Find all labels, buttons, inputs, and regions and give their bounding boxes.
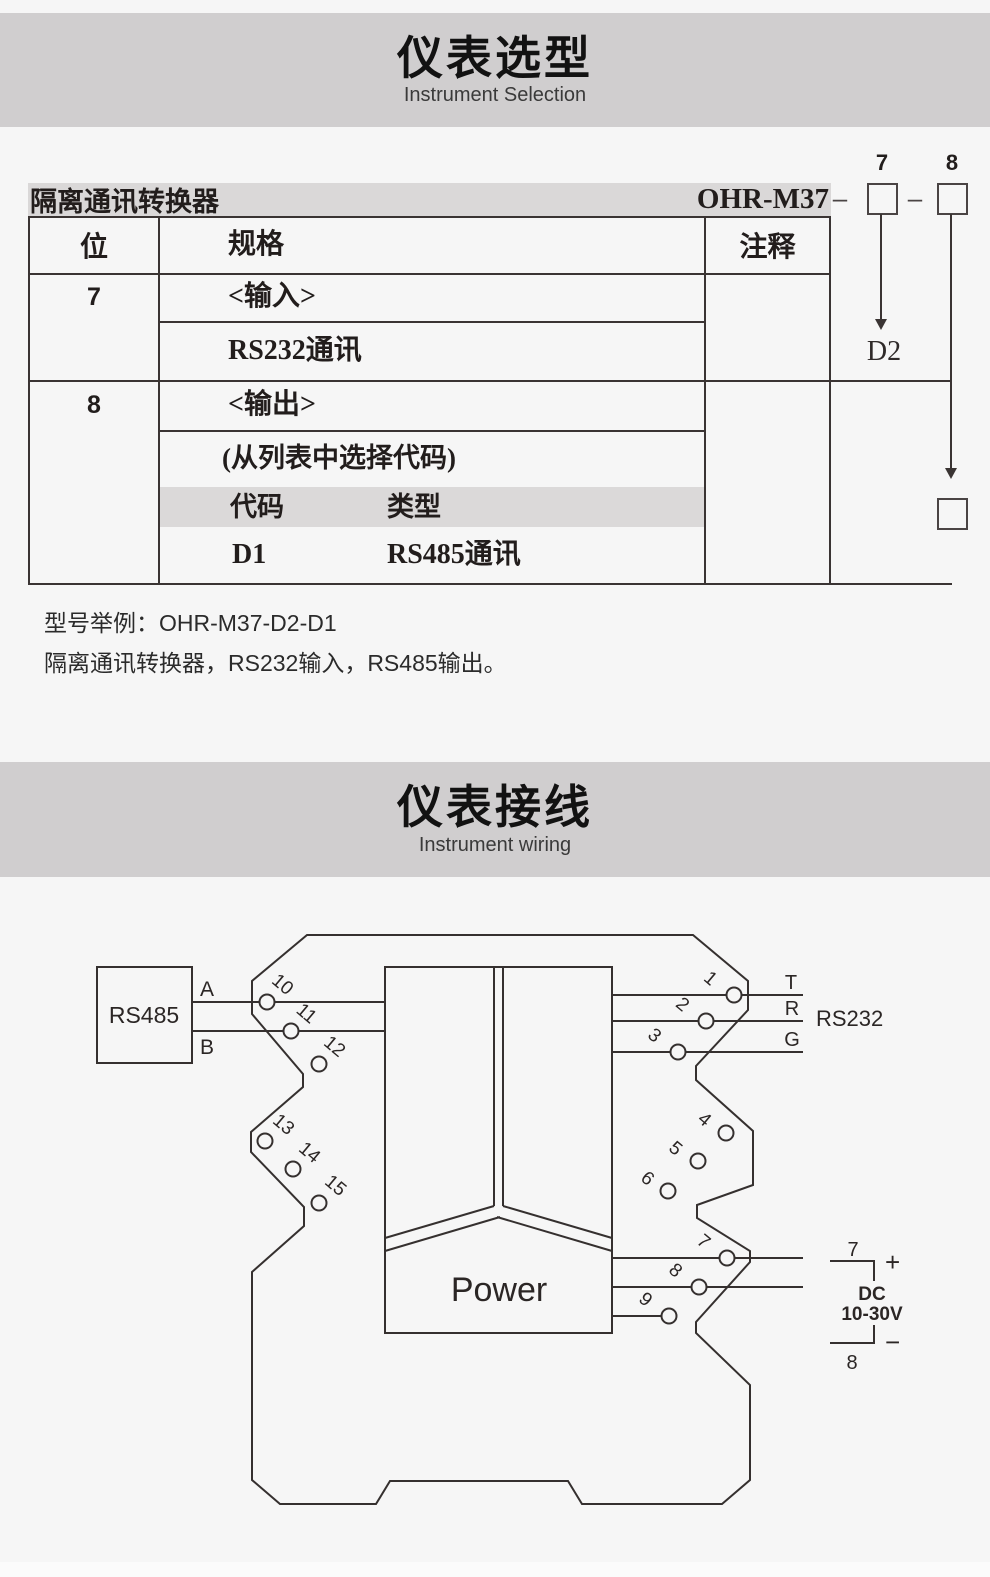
rs485-label: RS485 (109, 1002, 179, 1028)
product-name: 隔离通讯转换器 (30, 180, 219, 219)
terminal-circle-1 (727, 988, 742, 1003)
entry-code-d1: D1 (232, 527, 266, 583)
terminal-circle-10 (260, 995, 275, 1010)
wire-g-label: G (784, 1029, 800, 1051)
terminal-number-8: 8 (664, 1259, 686, 1282)
row7-spec-value: RS232通讯 (228, 321, 362, 380)
arrow-7-line (880, 214, 882, 320)
isolation-barrier-diagonal (385, 1206, 612, 1251)
arrow-8-head (945, 468, 957, 479)
section-title-en: Instrument Selection (404, 84, 586, 107)
wire-b-label: B (200, 1036, 214, 1059)
terminal-number-11: 11 (292, 999, 321, 1028)
arrow-8-line (950, 214, 952, 469)
rs232-label: RS232 (816, 1006, 883, 1031)
subheader-code: 代码 (230, 487, 284, 527)
terminal-circle-7 (720, 1251, 735, 1266)
terminal-circle-9 (662, 1309, 677, 1324)
power-label: Power (451, 1271, 547, 1309)
subheader-type: 类型 (387, 487, 441, 527)
terminal-number-9: 9 (634, 1288, 656, 1311)
terminal-number-5: 5 (664, 1137, 686, 1160)
row7-spec-title: <输入> (228, 273, 316, 321)
terminal-circle-11 (284, 1024, 299, 1039)
terminal-circle-15 (312, 1196, 327, 1211)
dc-range-label: 10-30V (841, 1304, 903, 1325)
example-model: 型号举例：OHR-M37-D2-D1 (44, 604, 337, 638)
digit-8-label: 8 (937, 148, 967, 178)
wiring-diagram: 123456789101112131415 RS485 A B T R G RS… (0, 877, 990, 1577)
terminal-circle-4 (719, 1126, 734, 1141)
terminal-circle-12 (312, 1057, 327, 1072)
col-header-position: 位 (28, 216, 160, 273)
table-line-row8 (28, 380, 952, 382)
dc-terminal-7-label: 7 (847, 1239, 858, 1261)
bottom-strip (0, 1562, 990, 1577)
row8-spec-hint: (从列表中选择代码) (222, 430, 456, 487)
digit-7-label: 7 (867, 148, 897, 178)
code-box-8 (937, 183, 968, 215)
code-box-7 (867, 183, 898, 215)
table-line-bottom (28, 583, 952, 585)
wiring-title-en: Instrument wiring (419, 834, 571, 857)
isolation-barrier-vertical (494, 967, 503, 1206)
wire-t-label: T (785, 972, 797, 994)
col-header-note: 注释 (704, 216, 831, 273)
terminal-circle-5 (691, 1154, 706, 1169)
terminal-circle-8 (692, 1280, 707, 1295)
terminal-number-6: 6 (636, 1167, 658, 1190)
table-title-bar: 隔离通讯转换器 OHR-M37 (28, 183, 831, 216)
terminal-number-1: 1 (699, 967, 721, 990)
wire-a-label: A (200, 978, 214, 1001)
dc-plus-sign: + (885, 1247, 900, 1277)
terminal-number-4: 4 (693, 1108, 715, 1131)
entry-type-rs485: RS485通讯 (387, 527, 521, 583)
terminal-number-7: 7 (692, 1230, 714, 1253)
terminal-circle-6 (661, 1184, 676, 1199)
datasheet-page: 仪表选型 Instrument Selection 隔离通讯转换器 OHR-M3… (0, 0, 990, 1577)
code-box-8-target (937, 498, 968, 530)
terminal-number-3: 3 (643, 1024, 665, 1047)
row7-position: 7 (28, 273, 160, 321)
section-title-cn: 仪表选型 (397, 33, 593, 84)
example-description: 隔离通讯转换器，RS232输入，RS485输出。 (44, 644, 507, 678)
terminal-number-13: 13 (268, 1110, 298, 1140)
wire-r-label: R (785, 998, 799, 1020)
model-dash-1: – (832, 183, 848, 214)
wiring-title-cn: 仪表接线 (397, 782, 593, 833)
section-header-wiring: 仪表接线 Instrument wiring (0, 762, 990, 877)
model-dash-2: – (907, 183, 923, 214)
terminal-circle-2 (699, 1014, 714, 1029)
row8-spec-title: <输出> (228, 380, 316, 430)
terminal-circle-3 (671, 1045, 686, 1060)
code-value-d2: D2 (854, 331, 914, 373)
terminal-circle-14 (286, 1162, 301, 1177)
col-header-spec: 规格 (228, 216, 284, 273)
model-code: OHR-M37 (697, 183, 829, 216)
row8-position: 8 (28, 380, 160, 430)
terminal-circle-13 (258, 1134, 273, 1149)
dc-minus-sign: − (885, 1327, 900, 1357)
section-header-selection: 仪表选型 Instrument Selection (0, 13, 990, 127)
dc-terminal-8-label: 8 (846, 1352, 857, 1374)
arrow-7-head (875, 319, 887, 330)
terminal-number-2: 2 (671, 993, 693, 1016)
terminal-number-15: 15 (320, 1171, 350, 1201)
dc-label: DC (858, 1284, 886, 1305)
